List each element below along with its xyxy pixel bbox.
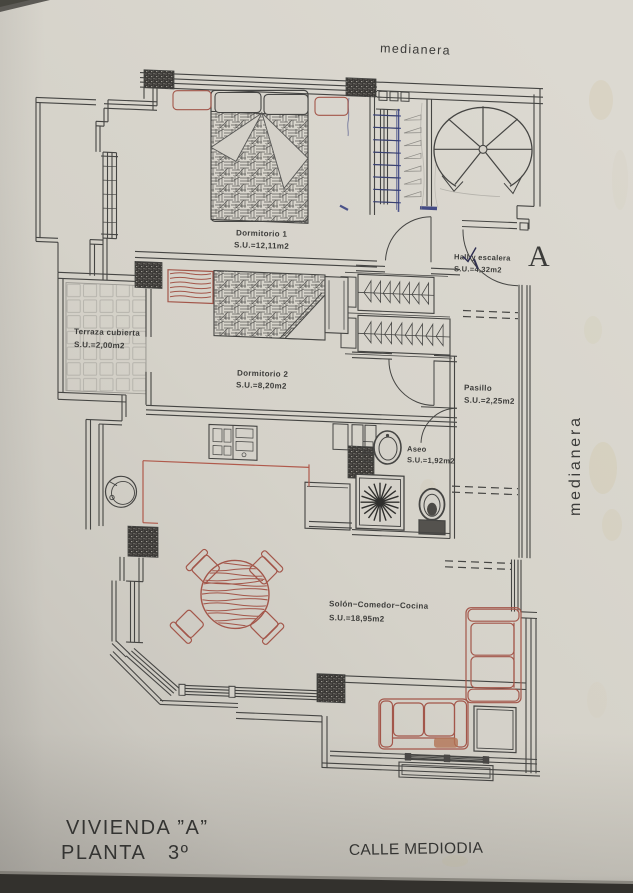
svg-text:S.U.=8,20m2: S.U.=8,20m2: [236, 380, 287, 390]
svg-text:3º: 3º: [168, 842, 189, 864]
svg-text:VIVIENDA ”A”: VIVIENDA ”A”: [66, 817, 208, 839]
svg-text:Dormitorio 2: Dormitorio 2: [237, 369, 289, 379]
svg-text:S.U.=12,11m2: S.U.=12,11m2: [234, 240, 289, 250]
svg-text:A: A: [528, 240, 550, 273]
svg-text:medianera: medianera: [380, 41, 451, 57]
svg-text:Pasillo: Pasillo: [464, 383, 492, 393]
svg-text:Aseo: Aseo: [407, 444, 427, 454]
svg-text:medianera: medianera: [567, 415, 584, 516]
svg-text:S.U.=18,95m2: S.U.=18,95m2: [329, 613, 385, 623]
svg-text:Terraza cubierta: Terraza cubierta: [74, 327, 140, 338]
svg-text:Dormitorio 1: Dormitorio 1: [236, 228, 288, 238]
svg-text:S.U.=2,25m2: S.U.=2,25m2: [464, 396, 515, 406]
svg-text:PLANTA: PLANTA: [61, 842, 146, 864]
svg-text:S.U.=2,00m2: S.U.=2,00m2: [74, 340, 125, 350]
svg-text:CALLE MEDIODIA: CALLE MEDIODIA: [349, 840, 484, 859]
svg-text:S.U.=4,32m2: S.U.=4,32m2: [454, 264, 502, 274]
svg-text:S.U.=1,92m2: S.U.=1,92m2: [407, 455, 455, 465]
svg-text:Hall y escalera: Hall y escalera: [454, 252, 511, 262]
